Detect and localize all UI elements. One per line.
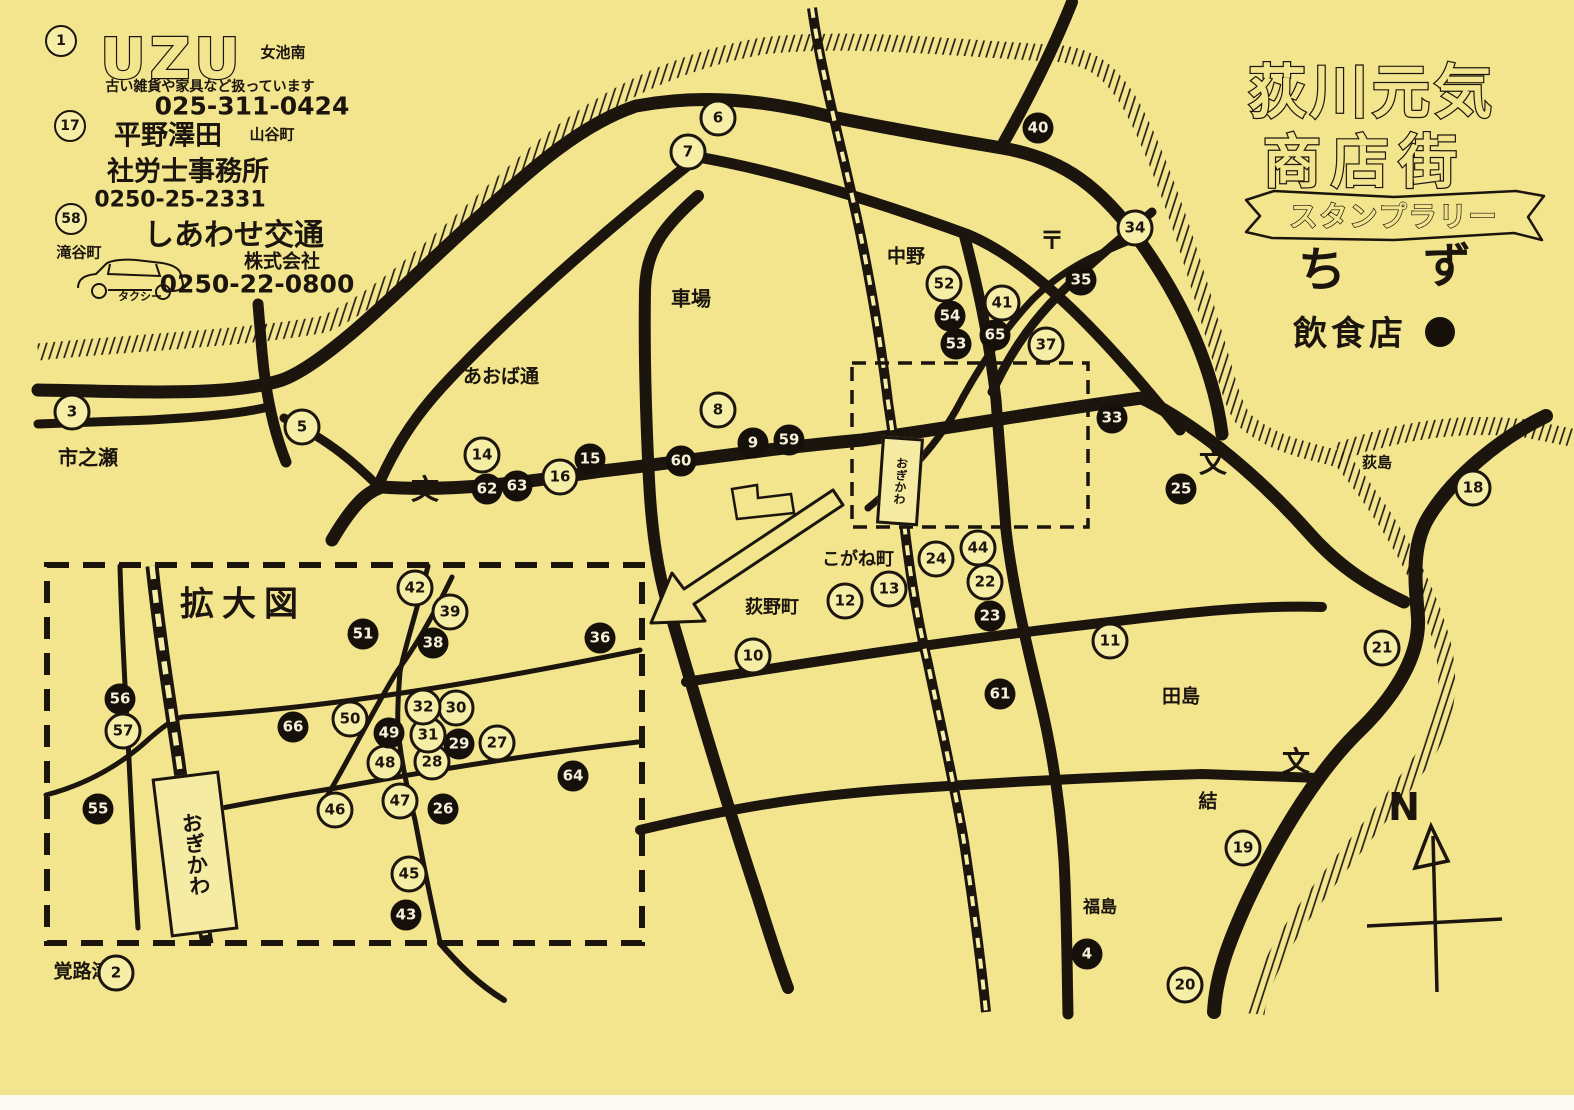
marker-52: 52 <box>926 266 963 303</box>
marker-47: 47 <box>382 783 419 820</box>
station-box-1: おぎかわ <box>876 436 924 527</box>
marker-19: 19 <box>1225 830 1262 867</box>
stamp-rally-map-page: N 荻川元気 商店街 スタンプラリー ち ず 飲食店 UZU 女池南 古い雑貨や… <box>0 0 1574 1110</box>
marker-48: 48 <box>367 745 404 782</box>
marker-3: 3 <box>54 394 91 431</box>
marker-24: 24 <box>918 541 955 578</box>
marker-65: 65 <box>980 320 1011 351</box>
label-post-mark: 〒 <box>1040 221 1064 256</box>
label-ichinose: 市之瀬 <box>58 442 118 471</box>
label-kakudai-zu: 拡大図 <box>180 577 306 626</box>
marker-25: 25 <box>1166 474 1197 505</box>
marker-49: 49 <box>374 718 405 749</box>
marker-55: 55 <box>83 794 114 825</box>
marker-22: 22 <box>967 564 1004 601</box>
marker-58: 58 <box>55 203 87 235</box>
marker-39: 39 <box>432 594 469 631</box>
label-ogino-machi: 荻野町 <box>745 593 799 619</box>
marker-63: 63 <box>502 471 533 502</box>
marker-38: 38 <box>418 628 449 659</box>
marker-37: 37 <box>1028 327 1065 364</box>
marker-26: 26 <box>428 794 459 825</box>
marker-41: 41 <box>984 285 1021 322</box>
label-school-2: 文 <box>1199 441 1227 481</box>
label-kogane-cho: こがね町 <box>822 545 894 571</box>
marker-51: 51 <box>348 619 379 650</box>
marker-5: 5 <box>284 409 321 446</box>
marker-17: 17 <box>54 110 86 142</box>
label-yui: 結 <box>1198 787 1217 814</box>
marker-32: 32 <box>405 689 442 726</box>
marker-27: 27 <box>479 725 516 762</box>
marker-30: 30 <box>438 690 475 727</box>
marker-4: 4 <box>1072 939 1103 970</box>
marker-12: 12 <box>827 583 864 620</box>
ad-hirano-name: 平野澤田 <box>114 114 222 153</box>
ad-hirano-area: 山谷町 <box>249 124 294 145</box>
scan-edge <box>0 1095 1574 1110</box>
marker-1: 1 <box>45 25 77 57</box>
marker-61: 61 <box>985 679 1016 710</box>
marker-66: 66 <box>278 712 309 743</box>
ad-shiawase-phone: 0250-22-0800 <box>160 270 355 299</box>
marker-62: 62 <box>472 474 503 505</box>
ad-shiawase-vehicle: タクシー <box>118 288 162 304</box>
marker-11: 11 <box>1092 623 1129 660</box>
marker-44: 44 <box>960 530 997 567</box>
marker-34: 34 <box>1117 210 1154 247</box>
marker-10: 10 <box>735 638 772 675</box>
marker-54: 54 <box>935 301 966 332</box>
marker-60: 60 <box>666 446 697 477</box>
label-fukushima: 福島 <box>1083 893 1117 918</box>
marker-20: 20 <box>1167 967 1204 1004</box>
marker-42: 42 <box>397 570 434 607</box>
ad-shiawase-area: 滝谷町 <box>56 242 101 263</box>
marker-50: 50 <box>332 701 369 738</box>
marker-57: 57 <box>105 713 142 750</box>
marker-64: 64 <box>558 761 589 792</box>
marker-36: 36 <box>585 623 616 654</box>
marker-53: 53 <box>941 329 972 360</box>
ad-uzu-area: 女池南 <box>260 42 305 63</box>
marker-14: 14 <box>464 437 501 474</box>
label-aoba-dori: あおば通 <box>463 362 539 389</box>
label-school-1: 文 <box>411 468 439 508</box>
marker-46: 46 <box>317 792 354 829</box>
marker-7: 7 <box>670 134 707 171</box>
label-school-3: 文 <box>1282 740 1310 780</box>
marker-23: 23 <box>975 601 1006 632</box>
marker-16: 16 <box>542 459 579 496</box>
marker-15: 15 <box>575 444 606 475</box>
marker-56: 56 <box>105 684 136 715</box>
marker-33: 33 <box>1097 403 1128 434</box>
marker-18: 18 <box>1455 470 1492 507</box>
marker-13: 13 <box>871 571 908 608</box>
marker-45: 45 <box>391 856 428 893</box>
ad-hirano-name2: 社労士事務所 <box>107 150 269 189</box>
marker-59: 59 <box>774 425 805 456</box>
marker-21: 21 <box>1364 630 1401 667</box>
marker-35: 35 <box>1066 265 1097 296</box>
marker-40: 40 <box>1023 113 1054 144</box>
marker-2: 2 <box>98 955 135 992</box>
marker-43: 43 <box>391 900 422 931</box>
marker-6: 6 <box>700 100 737 137</box>
marker-29: 29 <box>444 729 475 760</box>
marker-8: 8 <box>700 392 737 429</box>
marker-9: 9 <box>738 428 769 459</box>
label-nakano: 中野 <box>887 242 925 269</box>
label-tajima: 田島 <box>1162 682 1200 709</box>
label-shaba: 車場 <box>671 283 711 312</box>
ad-hirano-phone: 0250-25-2331 <box>94 188 265 213</box>
label-ogishima: 荻島 <box>1360 452 1394 473</box>
